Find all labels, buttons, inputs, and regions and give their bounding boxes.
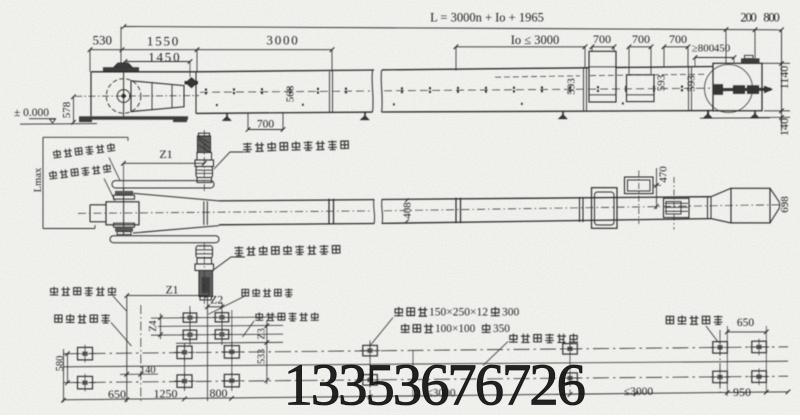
svg-text:13353676726: 13353676726 (284, 352, 585, 416)
